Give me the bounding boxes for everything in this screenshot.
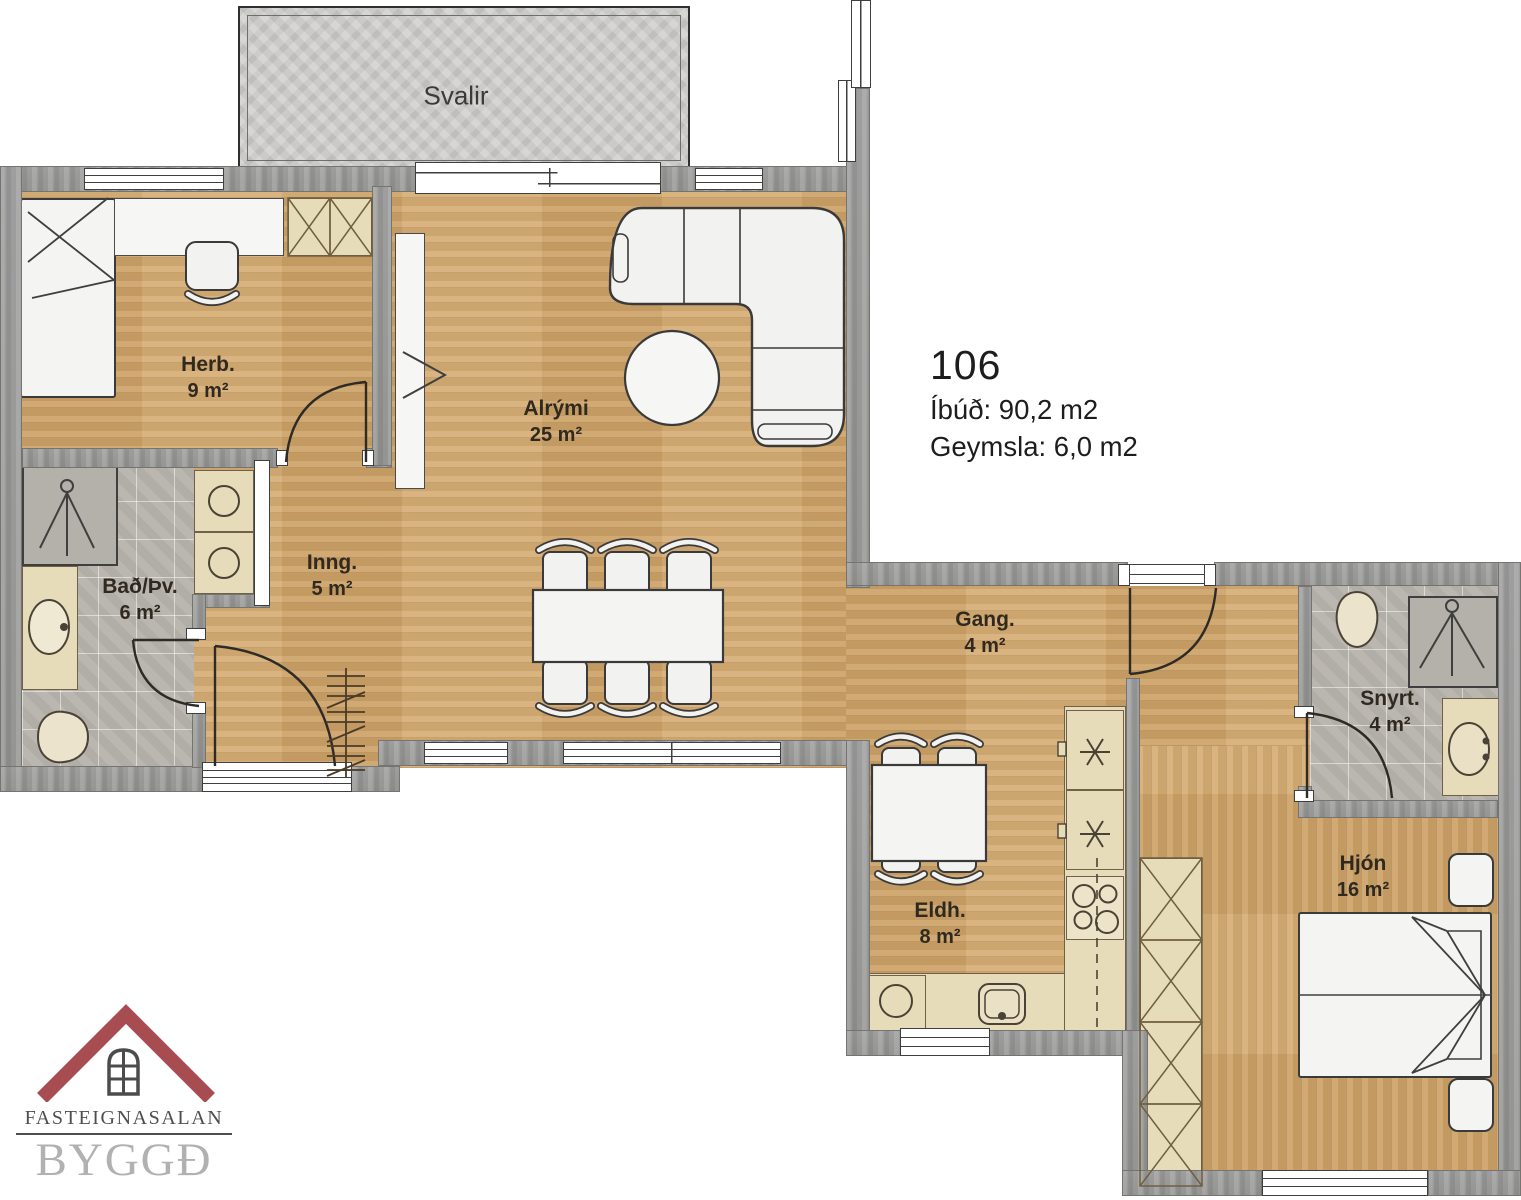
door-jamb	[1204, 564, 1216, 586]
room-name: Herb.	[181, 352, 235, 379]
wall-bath-east-b	[192, 708, 206, 768]
door-jamb	[186, 702, 206, 714]
unit-area-apartment: Íbúð: 90,2 m2	[930, 394, 1138, 426]
wardrobe-small	[288, 198, 372, 256]
room-area: 8 m²	[914, 925, 965, 951]
room-name: Hjón	[1337, 851, 1389, 878]
window-bedroom-north	[84, 168, 224, 190]
wall-herb-south-a	[22, 448, 278, 468]
room-label-hjon: Hjón 16 m²	[1337, 851, 1389, 903]
bed-double	[1298, 912, 1492, 1078]
room-label-bad: Bað/Þv. 6 m²	[102, 574, 177, 626]
room-label-svalir: Svalir	[423, 81, 488, 112]
wall-kitchen-south-a	[846, 1030, 902, 1056]
door-jamb	[186, 628, 206, 640]
wall-wc-west-a	[1298, 586, 1312, 716]
agency-logo: FASTEIGNASALAN BYGGÐ	[8, 1002, 240, 1186]
door-jamb	[1118, 564, 1130, 586]
bed-single	[20, 198, 116, 398]
logo-agency-text: FASTEIGNASALAN	[16, 1107, 232, 1135]
door-jamb	[276, 450, 288, 466]
room-area: 16 m²	[1337, 878, 1389, 904]
room-area: 4 m²	[955, 634, 1015, 660]
window-kitchen	[900, 1028, 990, 1056]
room-area: 25 m²	[523, 423, 588, 449]
room-name: Svalir	[423, 81, 488, 111]
hall-door-threshold	[1126, 564, 1206, 584]
wall-west	[0, 166, 22, 792]
window-neighbor-frame	[838, 80, 856, 162]
room-area: 9 m²	[181, 379, 235, 405]
room-name: Eldh.	[914, 898, 965, 925]
sliding-door-balcony	[415, 162, 661, 194]
door-jamb	[1294, 706, 1314, 718]
floor-plan-canvas: Svalir Herb. 9 m² Alrými 25 m² Inng. 5 m…	[0, 0, 1521, 1200]
window-dining-b	[563, 742, 781, 764]
fridge-unit	[1066, 710, 1124, 790]
wall-east	[1498, 562, 1521, 1196]
shower-icon	[22, 466, 118, 566]
door-jamb	[362, 450, 374, 466]
room-area: 5 m²	[307, 577, 357, 603]
unit-number: 106	[930, 342, 1138, 389]
cabinet-side-panel	[254, 460, 270, 606]
shower-icon-wc	[1408, 596, 1498, 688]
door-frame-common	[851, 0, 871, 88]
tv-unit	[395, 233, 425, 489]
logo-brand-text: BYGGÐ	[8, 1135, 240, 1186]
room-name: Alrými	[523, 396, 588, 423]
nightstand-top	[1448, 853, 1494, 907]
wall-bedroom-west	[1122, 1030, 1148, 1176]
door-jamb	[1294, 790, 1314, 802]
room-name: Inng.	[307, 550, 357, 577]
room-area: 6 m²	[102, 601, 177, 627]
entrance-threshold	[202, 762, 352, 792]
nightstand-bottom	[1448, 1078, 1494, 1132]
dryer-icon	[194, 532, 254, 594]
window-master-bedroom	[1262, 1170, 1428, 1196]
roof-house-icon	[8, 1002, 240, 1102]
room-label-gang: Gang. 4 m²	[955, 607, 1015, 659]
unit-area-storage: Geymsla: 6,0 m2	[930, 431, 1138, 463]
window-dining-a	[424, 742, 508, 764]
desk	[114, 198, 284, 256]
washing-machine-icon	[194, 470, 254, 532]
wardrobe-x-icon	[1140, 858, 1202, 1186]
freezer-unit	[1066, 790, 1124, 870]
room-label-inng: Inng. 5 m²	[307, 550, 357, 602]
room-label-eldh: Eldh. 8 m²	[914, 898, 965, 950]
room-area: 4 m²	[1360, 713, 1420, 739]
wall-herb-east	[372, 186, 392, 466]
room-label-alrymi: Alrými 25 m²	[523, 396, 588, 448]
room-name: Snyrt.	[1360, 686, 1420, 713]
wall-hall-north-a	[846, 562, 1128, 586]
wall-mid-east	[846, 88, 870, 588]
room-name: Gang.	[955, 607, 1015, 634]
wall-kitchen-bedroom	[1126, 678, 1140, 1032]
room-label-herb: Herb. 9 m²	[181, 352, 235, 404]
sink-counter-bathroom	[22, 566, 78, 690]
wall-hall-north-b	[1214, 562, 1521, 586]
kitchen-washer-icon	[866, 975, 926, 1031]
wall-bedroom-south-a	[1122, 1170, 1262, 1196]
room-label-snyrt: Snyrt. 4 m²	[1360, 686, 1420, 738]
sink-counter-wc	[1442, 698, 1500, 796]
room-name: Bað/Þv.	[102, 574, 177, 601]
wall-bedroom-south-b	[1428, 1170, 1521, 1196]
unit-info: 106 Íbúð: 90,2 m2 Geymsla: 6,0 m2	[930, 342, 1138, 463]
stove-burners-icon	[1066, 876, 1124, 940]
wall-kitchen-west	[846, 740, 870, 1056]
window-living-north	[695, 168, 763, 190]
wall-wc-south	[1298, 800, 1498, 818]
